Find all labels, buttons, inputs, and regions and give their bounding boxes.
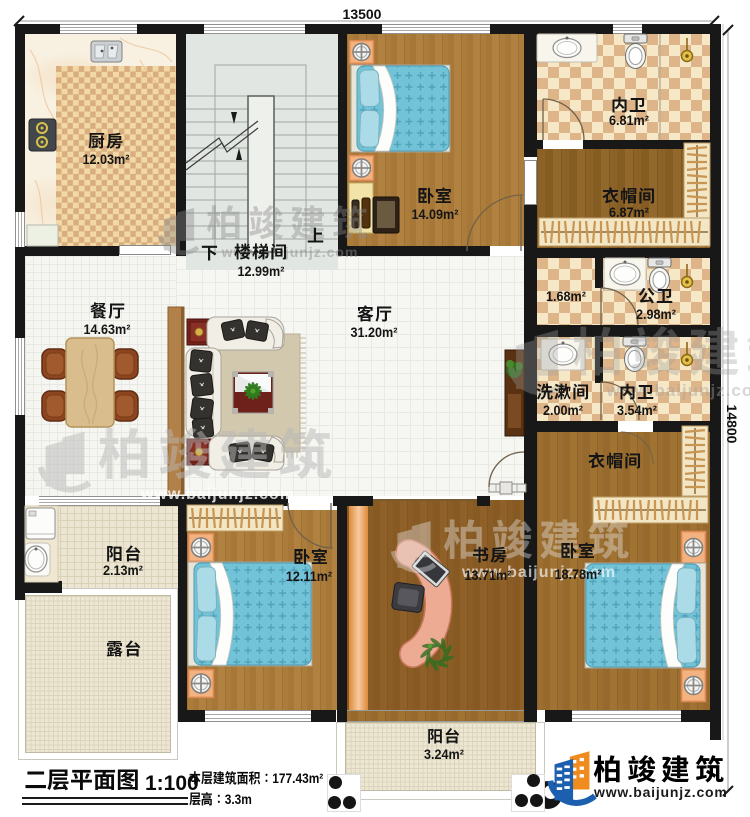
svg-text:13500: 13500: [343, 6, 382, 22]
svg-text:14800: 14800: [724, 405, 740, 444]
